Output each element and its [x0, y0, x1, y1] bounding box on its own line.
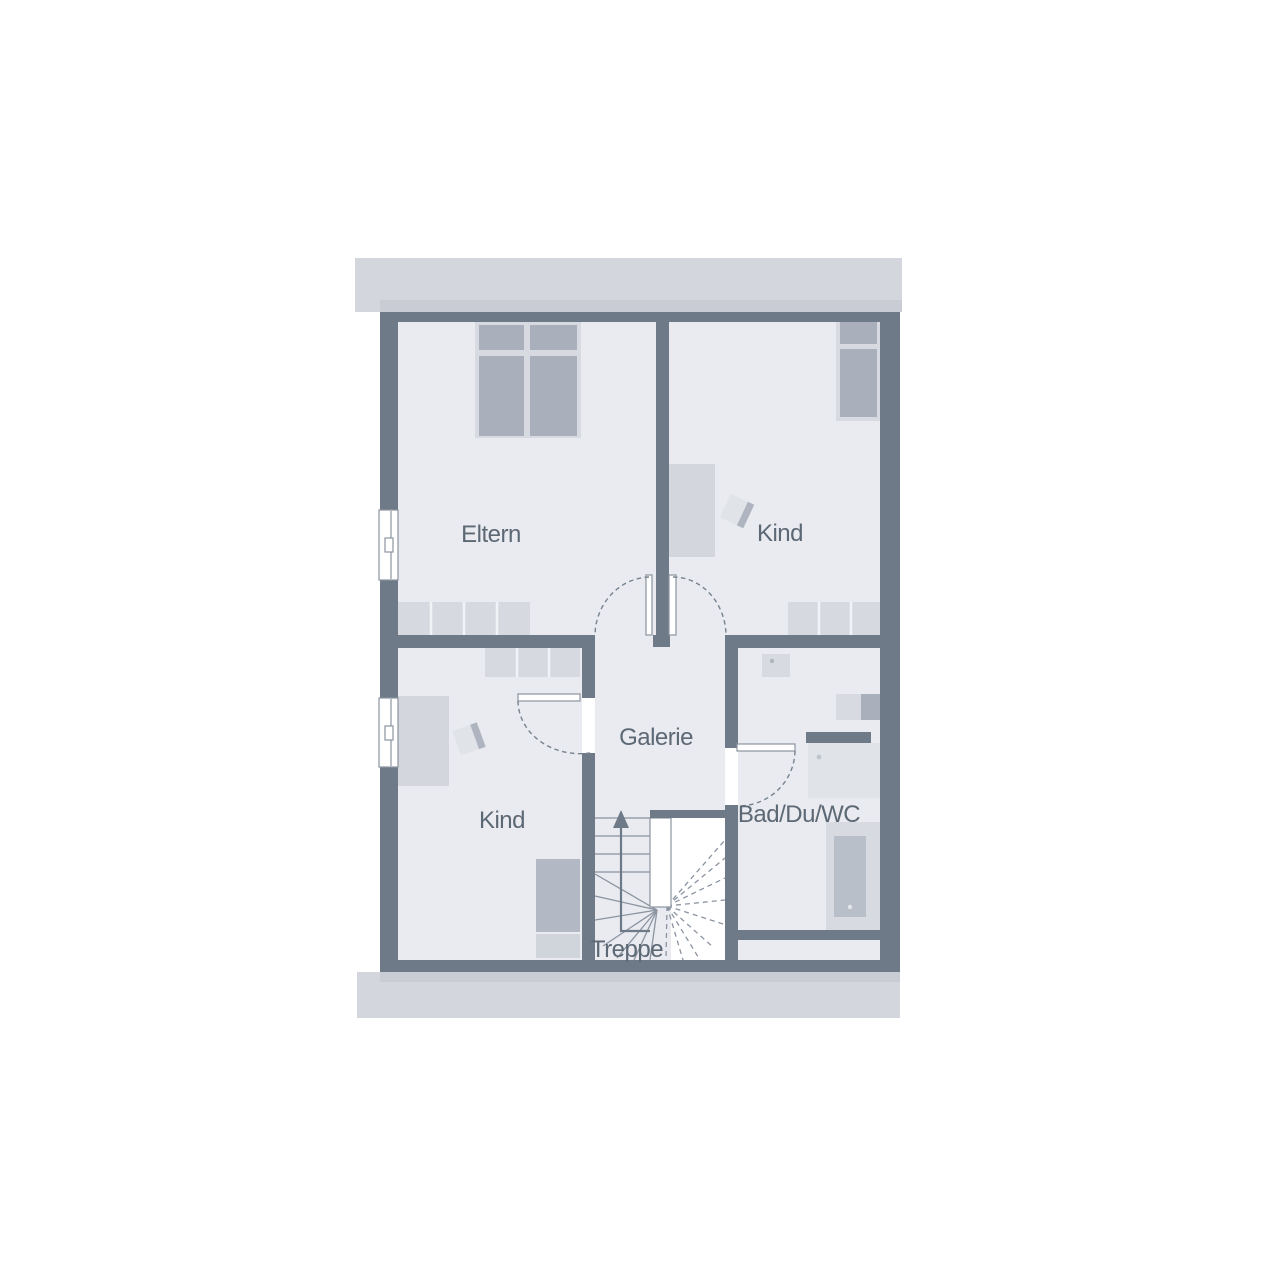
- toilet: [836, 694, 880, 720]
- eltern-wardrobe: [398, 602, 530, 636]
- shower: [808, 743, 880, 798]
- washbasin: [762, 654, 790, 677]
- kind-bottom-bed: [536, 859, 580, 958]
- label-kind-bottom: Kind: [479, 807, 525, 834]
- wall-mid-left: [398, 635, 595, 648]
- floor-plan-drawing: Eltern Kind Kind Galerie Bad/Du/WC Trepp…: [0, 0, 1280, 1280]
- wall-kindbottom-upper: [582, 648, 595, 698]
- floor-plan-page: Eltern Kind Kind Galerie Bad/Du/WC Trepp…: [0, 0, 1280, 1280]
- wall-bath-bottom: [725, 930, 880, 940]
- label-galerie: Galerie: [619, 724, 693, 751]
- wall-eltern-kind: [656, 322, 669, 635]
- roof-band-top: [355, 258, 902, 312]
- label-bad: Bad/Du/WC: [738, 801, 860, 828]
- wall-outer-left: [380, 312, 398, 972]
- window-kind-bottom: [379, 698, 398, 767]
- wall-kindbottom-lower: [582, 753, 595, 960]
- wall-door-pier: [653, 635, 670, 647]
- kind-bottom-wardrobe: [485, 648, 580, 677]
- wall-mid-right: [725, 635, 880, 648]
- roof-band-bottom: [357, 972, 900, 1018]
- window-eltern: [379, 510, 398, 580]
- wall-bath-upper: [725, 648, 738, 748]
- bathtub: [826, 822, 880, 932]
- label-treppe: Treppe: [591, 936, 663, 963]
- label-kind-top: Kind: [757, 520, 803, 547]
- kind-top-desk: [669, 464, 715, 557]
- eltern-double-bed: [475, 321, 581, 438]
- wall-outer-right: [880, 312, 900, 972]
- kind-bottom-desk: [398, 696, 449, 786]
- kind-top-wardrobe: [788, 602, 880, 636]
- kind-top-bed: [836, 318, 880, 421]
- wall-shower-stub: [806, 732, 871, 743]
- label-eltern: Eltern: [461, 521, 521, 548]
- stair-well: [650, 818, 671, 907]
- wall-stair-head: [650, 810, 725, 818]
- wall-outer-top: [380, 312, 900, 322]
